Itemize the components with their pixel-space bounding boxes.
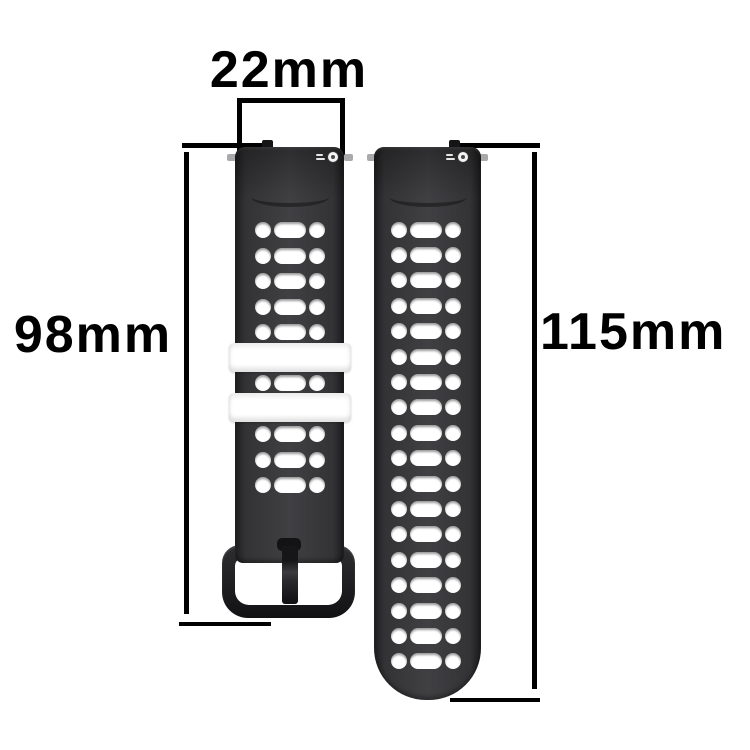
strap-hole: [309, 299, 325, 315]
strap-hole: [410, 577, 442, 593]
strap-hole-row: [391, 349, 461, 365]
strap-hole: [410, 476, 442, 492]
strap-hole: [255, 452, 271, 468]
comet-logo-icon: [316, 151, 338, 163]
strap-hole: [309, 324, 325, 340]
keeper-band: [229, 393, 351, 422]
strap-hole: [255, 426, 271, 442]
strap-hole: [445, 272, 461, 288]
strap-hole: [410, 272, 442, 288]
strap-hole: [445, 222, 461, 238]
comet-logo-icon: [446, 151, 468, 163]
strap-hole-row: [391, 552, 461, 568]
strap-hole: [274, 273, 306, 289]
buckle-prong: [282, 546, 298, 604]
strap-hole: [274, 248, 306, 264]
strap-hole-row: [255, 222, 325, 238]
strap-hole: [445, 476, 461, 492]
strap-hole-row: [391, 603, 461, 619]
strap-hole: [274, 222, 306, 238]
strap-hole: [391, 552, 407, 568]
strap-hole: [410, 247, 442, 263]
strap-hole-row: [391, 222, 461, 238]
strap-hole: [410, 501, 442, 517]
strap-hole: [391, 450, 407, 466]
keeper-band: [229, 343, 351, 372]
strap-hole: [274, 426, 306, 442]
strap-hole: [309, 248, 325, 264]
strap-hole: [445, 450, 461, 466]
width-dimension-tick-right: [340, 98, 345, 156]
strap-hole-row: [391, 476, 461, 492]
strap-hole: [445, 603, 461, 619]
spring-bar-pin: [344, 154, 353, 161]
strap-hole-row: [391, 577, 461, 593]
strap-hole: [274, 324, 306, 340]
right-height-dimension-label: 115mm: [540, 306, 725, 358]
strap-hole: [255, 324, 271, 340]
strap-hole: [445, 526, 461, 542]
strap-hole: [391, 374, 407, 390]
strap-hole: [391, 526, 407, 542]
strap-hole-row: [391, 628, 461, 644]
left-height-dimension-line: [184, 152, 189, 614]
strap-hole: [445, 653, 461, 669]
strap-hole: [445, 628, 461, 644]
strap-hole-row: [255, 324, 325, 340]
strap-hole: [309, 452, 325, 468]
strap-hole: [391, 298, 407, 314]
strap-hole: [255, 299, 271, 315]
strap-hole-row: [255, 375, 325, 391]
strap-hole-row: [391, 653, 461, 669]
strap-hole-row: [391, 272, 461, 288]
strap-hole: [391, 603, 407, 619]
strap-hole: [391, 272, 407, 288]
strap-hole: [391, 399, 407, 415]
strap-hole: [410, 628, 442, 644]
strap-hole-row: [391, 450, 461, 466]
strap-hole: [309, 273, 325, 289]
right-height-tick-bottom: [450, 698, 540, 702]
strap-hole: [391, 653, 407, 669]
strap-hole: [391, 628, 407, 644]
strap-hole: [391, 577, 407, 593]
product-dimension-image: 22mm 98mm 115mm: [0, 0, 750, 750]
strap-hole: [410, 298, 442, 314]
left-height-tick-bottom: [179, 622, 271, 626]
strap-hole: [309, 222, 325, 238]
strap-hole: [274, 375, 306, 391]
strap-hole: [410, 425, 442, 441]
strap-hole: [255, 248, 271, 264]
strap-hole: [410, 552, 442, 568]
strap-hole: [274, 299, 306, 315]
strap-hole: [309, 477, 325, 493]
strap-hole: [410, 653, 442, 669]
strap-hole: [410, 323, 442, 339]
strap-hole: [255, 273, 271, 289]
strap-hole: [255, 222, 271, 238]
strap-hole-row: [255, 452, 325, 468]
strap-hole: [445, 323, 461, 339]
strap-hole: [391, 247, 407, 263]
strap-hole-row: [391, 247, 461, 263]
strap-hole-row: [391, 399, 461, 415]
strap-hole: [309, 426, 325, 442]
strap-hole: [391, 323, 407, 339]
strap-hole-row: [391, 323, 461, 339]
strap-groove: [389, 187, 467, 207]
strap-hole-row: [255, 426, 325, 442]
strap-hole: [445, 501, 461, 517]
strap-hole: [445, 349, 461, 365]
strap-hole: [391, 501, 407, 517]
strap-hole: [410, 374, 442, 390]
strap-hole: [410, 399, 442, 415]
strap-hole-row: [255, 299, 325, 315]
strap-hole: [255, 375, 271, 391]
strap-groove: [251, 187, 329, 207]
strap-hole-row: [391, 298, 461, 314]
width-dimension-line: [237, 98, 345, 103]
strap-hole: [410, 450, 442, 466]
strap-hole-row: [255, 273, 325, 289]
strap-hole: [391, 222, 407, 238]
strap-hole: [309, 375, 325, 391]
strap-hole: [255, 477, 271, 493]
strap-hole-row: [391, 425, 461, 441]
strap-hole: [445, 374, 461, 390]
strap-hole-row: [391, 374, 461, 390]
strap-hole: [410, 603, 442, 619]
strap-hole: [445, 577, 461, 593]
strap-hole: [410, 349, 442, 365]
strap-hole: [445, 425, 461, 441]
strap-hole-row: [391, 526, 461, 542]
strap-hole: [445, 399, 461, 415]
right-strap: [374, 147, 481, 700]
strap-hole: [391, 476, 407, 492]
strap-hole-row: [391, 501, 461, 517]
strap-hole: [410, 526, 442, 542]
strap-hole: [410, 222, 442, 238]
strap-hole: [445, 247, 461, 263]
right-height-dimension-line: [532, 152, 537, 689]
strap-hole: [274, 452, 306, 468]
width-dimension-label: 22mm: [179, 44, 399, 96]
strap-hole: [445, 552, 461, 568]
strap-hole: [274, 477, 306, 493]
strap-hole-row: [255, 477, 325, 493]
strap-hole: [391, 349, 407, 365]
left-height-dimension-label: 98mm: [10, 309, 176, 361]
strap-hole: [391, 425, 407, 441]
strap-hole-row: [255, 248, 325, 264]
strap-hole: [445, 298, 461, 314]
